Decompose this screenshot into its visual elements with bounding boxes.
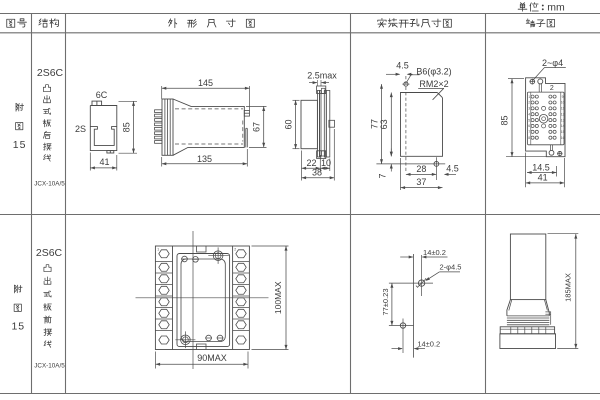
- svg-text:10: 10: [321, 158, 331, 168]
- svg-text:5: 5: [528, 118, 530, 122]
- svg-text:28: 28: [416, 164, 426, 174]
- svg-text:14: 14: [561, 124, 565, 128]
- svg-text:185MAX: 185MAX: [563, 273, 572, 302]
- svg-text:3: 3: [528, 107, 530, 111]
- svg-text:6C: 6C: [96, 90, 108, 100]
- svg-text:60: 60: [283, 119, 293, 129]
- svg-text:15: 15: [11, 321, 25, 333]
- svg-text:4.5: 4.5: [446, 164, 459, 174]
- svg-text:2S6C: 2S6C: [37, 67, 64, 79]
- svg-text:15: 15: [13, 139, 27, 151]
- svg-text:135: 135: [197, 154, 212, 164]
- svg-text:JCX-10A/5: JCX-10A/5: [34, 181, 65, 188]
- svg-text:2S: 2S: [75, 124, 86, 134]
- svg-text:77: 77: [369, 119, 379, 129]
- svg-text:63: 63: [379, 119, 389, 129]
- svg-text:7: 7: [528, 130, 530, 134]
- svg-text:38: 38: [312, 167, 322, 177]
- svg-text:mm: mm: [547, 2, 565, 14]
- svg-text:2-φ4.5: 2-φ4.5: [440, 262, 462, 271]
- svg-text:1: 1: [528, 95, 530, 99]
- svg-text:2: 2: [528, 101, 530, 105]
- svg-text:4.5: 4.5: [396, 61, 409, 71]
- svg-text:4: 4: [528, 112, 530, 116]
- svg-text:90MAX: 90MAX: [197, 353, 227, 363]
- svg-text:8: 8: [528, 136, 530, 140]
- svg-text:7: 7: [377, 173, 387, 178]
- svg-text:15: 15: [561, 130, 565, 134]
- svg-text:2: 2: [550, 85, 554, 92]
- svg-text:2.5max: 2.5max: [307, 70, 337, 80]
- svg-text:77±0.23: 77±0.23: [381, 288, 390, 315]
- svg-text:12: 12: [561, 112, 565, 116]
- svg-text:JCX-10A/5: JCX-10A/5: [34, 363, 65, 370]
- svg-text:11: 11: [561, 107, 565, 111]
- svg-text:10: 10: [561, 101, 565, 105]
- svg-text:14±0.2: 14±0.2: [423, 248, 446, 257]
- svg-text:16: 16: [561, 136, 565, 140]
- svg-text:37: 37: [416, 177, 426, 187]
- svg-text:1: 1: [157, 248, 159, 252]
- svg-text:41: 41: [99, 157, 109, 167]
- svg-text:2: 2: [234, 248, 236, 252]
- svg-text:85: 85: [500, 115, 510, 125]
- svg-text:67: 67: [251, 122, 261, 132]
- svg-text:6: 6: [528, 124, 530, 128]
- svg-text:14.5: 14.5: [532, 162, 550, 172]
- svg-text:B6(φ3.2): B6(φ3.2): [416, 66, 451, 76]
- svg-text:14±0.2: 14±0.2: [417, 339, 440, 348]
- svg-text:85: 85: [122, 122, 132, 132]
- svg-text:RM2×2: RM2×2: [419, 79, 448, 89]
- svg-text:41: 41: [538, 173, 548, 183]
- svg-text:2S6C: 2S6C: [36, 247, 63, 259]
- svg-text:13: 13: [561, 118, 565, 122]
- svg-text:145: 145: [198, 78, 213, 88]
- svg-text:9: 9: [562, 95, 564, 99]
- svg-text:2~φ4: 2~φ4: [542, 58, 563, 68]
- svg-text:100MAX: 100MAX: [273, 281, 283, 314]
